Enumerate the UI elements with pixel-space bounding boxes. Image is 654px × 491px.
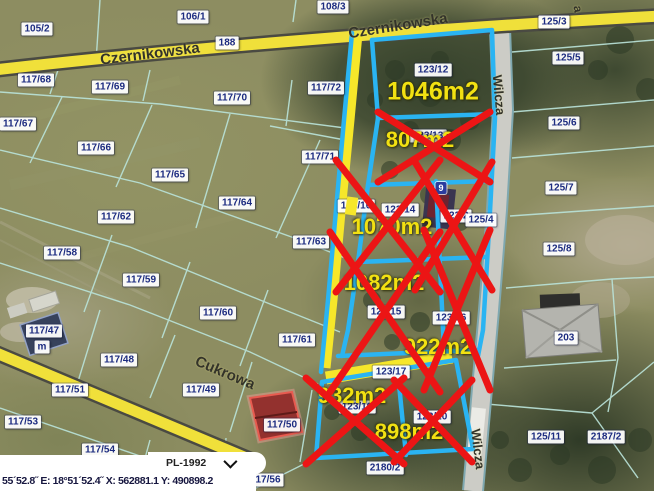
parcel-label: 117/61 (279, 334, 315, 347)
parcel-label: 188 (216, 37, 239, 50)
parcel-label: 117/51 (52, 384, 88, 397)
parcel-label: 117/62 (98, 211, 134, 224)
area-label: 807m2 (386, 127, 455, 153)
road-name-label: Czernikowska (99, 39, 200, 68)
map-viewport[interactable]: 105/2106/1108/3188125/3117/68117/69117/7… (0, 0, 654, 491)
parcel-label: 125/3 (538, 16, 569, 29)
parcel-label: 123/12 (415, 64, 452, 77)
parcel-label: 117/63 (293, 236, 329, 249)
parcel-label: 117/64 (219, 197, 255, 210)
road-name-label: Wilcza (468, 428, 488, 470)
parcel-label: 117/60 (200, 307, 236, 320)
crs-label: PL-1992 (166, 457, 206, 469)
parcel-label: 125/5 (552, 52, 583, 65)
parcel-label: 117/50 (264, 419, 300, 432)
area-label: 1070m2 (352, 214, 433, 240)
parcel-label: 117/70 (214, 92, 250, 105)
parcel-label: 117/53 (5, 416, 41, 429)
chevron-down-icon[interactable] (224, 455, 238, 469)
labels-layer: 105/2106/1108/3188125/3117/68117/69117/7… (0, 0, 654, 491)
road-name-label: Wilcza (490, 74, 508, 115)
parcel-label: 117/67 (0, 118, 36, 131)
road-name-label: Czernikowska (347, 10, 448, 42)
parcel-label: 125/11 (528, 431, 564, 444)
parcel-label: 108/3 (317, 1, 348, 14)
parcel-label: 105/2 (21, 23, 52, 36)
parcel-label: 125/8 (543, 243, 574, 256)
parcel-label: 117/47 (26, 325, 62, 338)
parcel-label: 17/56 (252, 474, 283, 487)
area-label: 932m2 (318, 383, 387, 409)
parcel-label: 123/16 (433, 312, 470, 325)
parcel-label: 125/6 (548, 117, 579, 130)
parcel-label: 117/68 (18, 74, 54, 87)
parcel-label: 125/4 (465, 214, 496, 227)
parcel-label: 106/1 (177, 11, 208, 24)
area-label: 898m2 (375, 419, 444, 445)
house-number-plate: 9 (435, 182, 446, 194)
area-label: 1082m2 (344, 270, 425, 296)
parcel-label: 123/15 (368, 306, 405, 319)
parcel-label: 117/69 (92, 81, 128, 94)
area-label: 922m2 (404, 334, 473, 360)
parcel-label: 117/54 (82, 444, 118, 457)
parcel-label: 123/10 (338, 200, 375, 213)
road-name-label: a (571, 4, 586, 13)
parcel-label: 203 (555, 332, 578, 345)
parcel-label: 125/7 (545, 182, 576, 195)
parcel-label: 117/71 (302, 151, 338, 164)
parcel-label: 123/17 (373, 366, 410, 379)
parcel-label: 117/59 (123, 274, 159, 287)
parcel-label: 117/72 (308, 82, 344, 95)
parcel-label: 117/58 (44, 247, 80, 260)
parcel-label: 117/49 (183, 384, 219, 397)
parcel-label: 117/65 (152, 169, 188, 182)
area-label: 1046m2 (387, 78, 479, 107)
parcel-label: 2187/2 (588, 431, 625, 444)
parcel-label: 2180/2 (367, 462, 404, 475)
crs-dropdown[interactable]: PL-1992 (148, 452, 266, 474)
parcel-label: 117/66 (78, 142, 114, 155)
parcel-label: 117/48 (101, 354, 137, 367)
parcel-label: m (35, 341, 50, 354)
